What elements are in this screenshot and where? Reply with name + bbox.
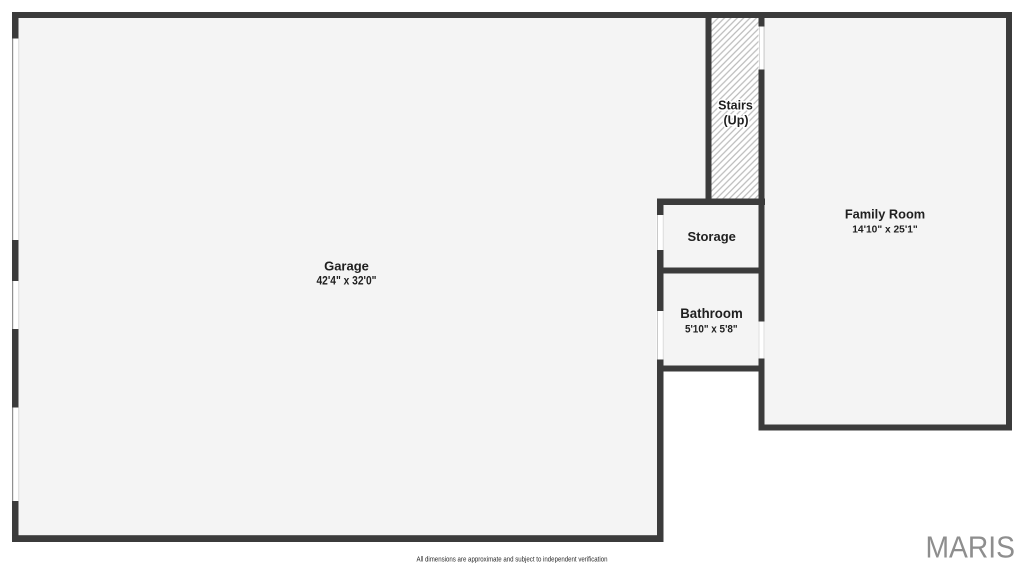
svg-text:42'4" x 32'0": 42'4" x 32'0" — [317, 276, 377, 288]
svg-text:Storage: Storage — [687, 229, 735, 244]
svg-text:5'10" x 5'8": 5'10" x 5'8" — [685, 324, 738, 336]
svg-text:Family Room: Family Room — [845, 207, 925, 222]
svg-text:14'10" x 25'1": 14'10" x 25'1" — [852, 225, 918, 236]
svg-text:Stairs: Stairs — [718, 99, 753, 113]
svg-text:All dimensions are approximate: All dimensions are approximate and subje… — [417, 557, 608, 564]
svg-text:(Up): (Up) — [724, 114, 749, 128]
svg-text:MARIS: MARIS — [926, 530, 1016, 565]
svg-text:Garage: Garage — [324, 259, 369, 274]
svg-text:Bathroom: Bathroom — [680, 305, 743, 321]
